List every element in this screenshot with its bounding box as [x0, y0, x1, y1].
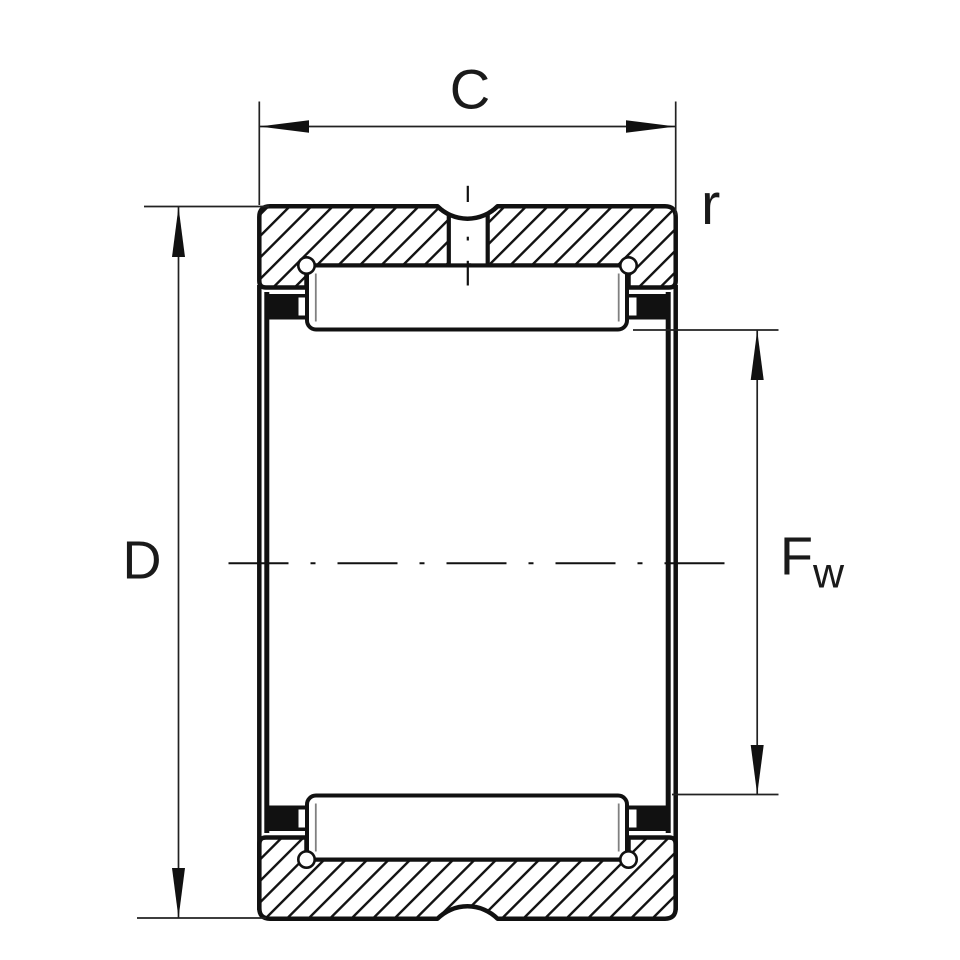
- svg-text:D: D: [123, 531, 162, 591]
- svg-text:r: r: [701, 172, 720, 237]
- svg-text:C: C: [450, 58, 490, 121]
